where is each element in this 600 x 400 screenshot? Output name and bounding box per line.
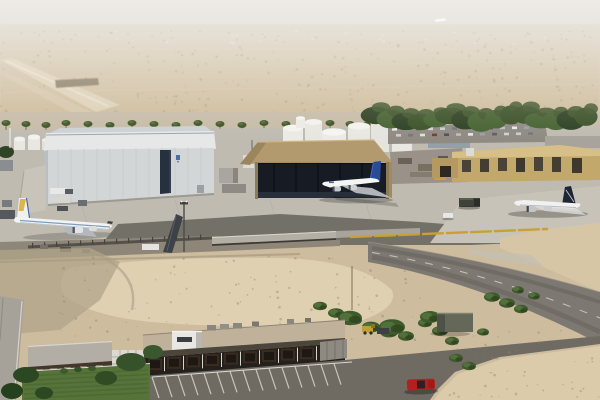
airliner-center-titles <box>329 182 334 184</box>
dark-parked-car <box>377 328 389 334</box>
hangar-personnel-door <box>197 185 204 193</box>
white-van <box>442 213 454 220</box>
dark-truck <box>458 198 480 210</box>
atmospheric-haze <box>0 0 600 140</box>
rooftop-cabin <box>172 331 202 350</box>
red-car <box>404 378 439 395</box>
airport-aerial-scene <box>0 0 600 400</box>
aerial-photo <box>0 0 600 400</box>
hangar-door-seam <box>160 150 171 194</box>
